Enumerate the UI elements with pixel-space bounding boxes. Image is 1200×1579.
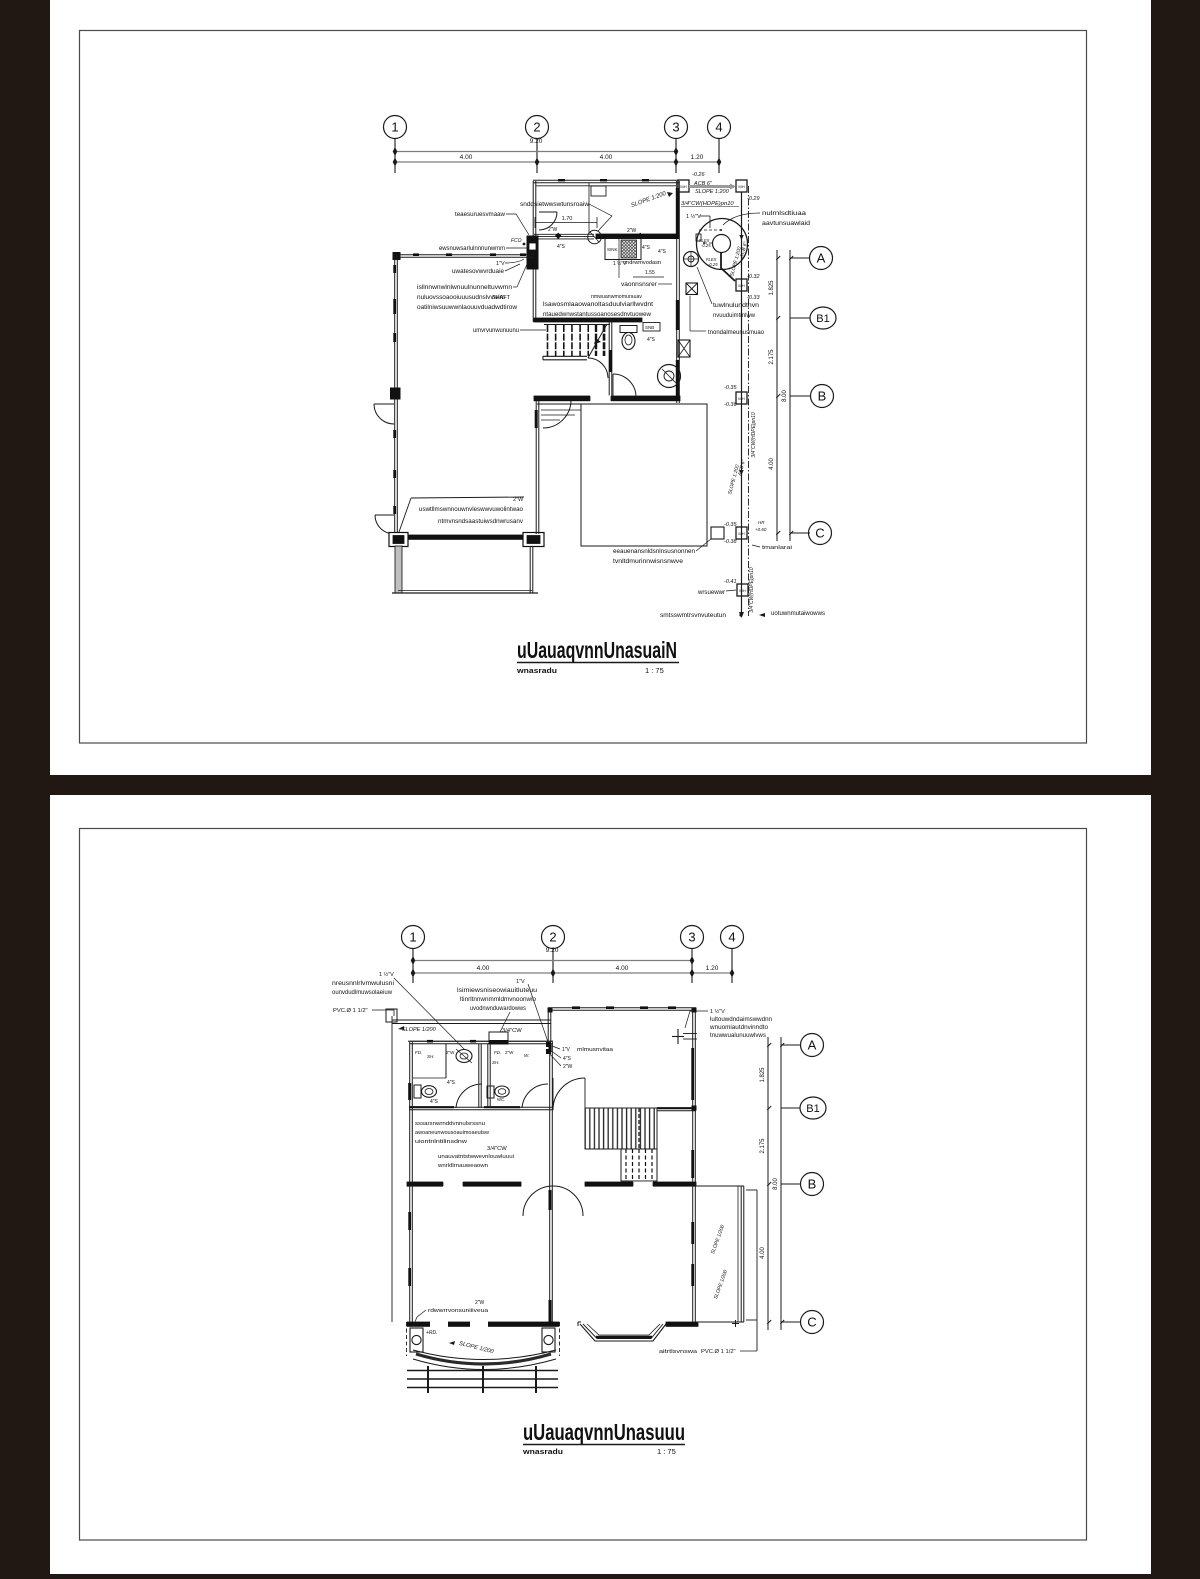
svg-text:SLOPE 1/200: SLOPE 1/200 xyxy=(710,1224,726,1255)
svg-text:eeauenansnldsnlnsusnonnen: eeauenansnldsnlnsusnonnen xyxy=(613,548,696,555)
svg-text:4"S: 4"S xyxy=(563,1056,572,1062)
svg-text:-0.32: -0.32 xyxy=(747,274,760,280)
svg-text:4.00: 4.00 xyxy=(760,1247,766,1259)
svg-text:C: C xyxy=(807,1315,816,1330)
svg-text:MH: MH xyxy=(680,184,686,189)
svg-text:mlmusnvitaa: mlmusnvitaa xyxy=(577,1047,614,1053)
svg-text:B1: B1 xyxy=(806,1103,819,1115)
svg-text:1.20: 1.20 xyxy=(691,154,704,161)
svg-text:B: B xyxy=(808,1177,817,1192)
svg-text:4"S: 4"S xyxy=(557,244,566,250)
svg-text:1 ½"V: 1 ½"V xyxy=(613,260,627,267)
svg-text:ntmvnsndsaastuiwsdnwrusanv: ntmvnsndsaastuiwsdnwrusanv xyxy=(438,518,524,525)
svg-text:3: 3 xyxy=(688,930,695,945)
svg-text:tnuwwualunuuwlvws: tnuwwualunuuwlvws xyxy=(710,1033,766,1039)
svg-text:tvnltdmurinnwisnsnwve: tvnltdmurinnwisnsnwve xyxy=(613,558,684,565)
svg-text:nulrnlsdtiuaa: nulrnlsdtiuaa xyxy=(762,210,807,217)
svg-text:1: 1 xyxy=(409,930,416,945)
svg-text:SLOPE 1:200: SLOPE 1:200 xyxy=(630,191,667,209)
svg-text:lultouwdndaimswwdnn: lultouwdndaimswwdnn xyxy=(710,1017,772,1023)
svg-text:3: 3 xyxy=(672,120,679,135)
svg-text:-0.29: -0.29 xyxy=(747,196,760,202)
svg-text:uUauaqvnnUnasuuu: uUauaqvnnUnasuuu xyxy=(523,1419,685,1445)
svg-text:2.175: 2.175 xyxy=(760,1138,766,1154)
svg-text:wnrldlrnauweaown: wnrldlrnauweaown xyxy=(437,1163,488,1169)
svg-text:2"W: 2"W xyxy=(475,1300,485,1306)
svg-text:aavtunsuawlaid: aavtunsuawlaid xyxy=(762,220,811,227)
svg-text:FD.: FD. xyxy=(494,1050,501,1055)
svg-text:sssarsnwrnddvnnulsrssnu: sssarsnwrnddvnnulsrssnu xyxy=(415,1121,485,1127)
svg-text:1 ½"V: 1 ½"V xyxy=(686,213,701,220)
svg-text:4: 4 xyxy=(715,120,722,135)
svg-text:3/4"CW: 3/4"CW xyxy=(487,1146,507,1152)
svg-text:4"S: 4"S xyxy=(642,245,651,251)
svg-text:HR: HR xyxy=(758,520,765,525)
svg-text:SH.: SH. xyxy=(427,1054,435,1059)
svg-text:-0.38: -0.38 xyxy=(724,539,737,545)
svg-text:SLOPE 1/200: SLOPE 1/200 xyxy=(402,1027,437,1033)
svg-text:uUauaqvnnUnasuaiN: uUauaqvnnUnasuaiN xyxy=(517,637,677,663)
svg-text:-0.35: -0.35 xyxy=(724,385,737,391)
svg-text:SLOPE 1/200: SLOPE 1/200 xyxy=(458,1341,495,1356)
svg-text:4.00: 4.00 xyxy=(600,154,613,161)
svg-text:3/4"CW: 3/4"CW xyxy=(502,1028,522,1034)
svg-text:ounvdudlmuwsolaeiuw: ounvdudlmuwsolaeiuw xyxy=(332,990,393,996)
svg-text:-0.25: -0.25 xyxy=(701,243,711,248)
svg-text:2"W: 2"W xyxy=(548,227,558,233)
svg-text:W.: W. xyxy=(524,1053,529,1058)
svg-text:SLOPE 1/200: SLOPE 1/200 xyxy=(713,1269,729,1300)
svg-text:-0.25: -0.25 xyxy=(708,262,718,267)
svg-text:+RD.: +RD. xyxy=(426,1330,438,1336)
svg-text:2"W: 2"W xyxy=(446,1050,455,1055)
svg-text:1.825: 1.825 xyxy=(760,1067,766,1083)
svg-text:ntauedwnwstantussoanosesdnvtuo: ntauedwnwstantussoanosesdnvtuowew xyxy=(543,311,652,318)
svg-text:wrsuewwr: wrsuewwr xyxy=(697,589,725,596)
svg-text:+0.60: +0.60 xyxy=(755,527,767,532)
svg-text:nvuuduimtmlww: nvuuduimtmlww xyxy=(713,312,756,319)
svg-text:1: 1 xyxy=(391,120,398,135)
svg-text:MH: MH xyxy=(738,184,744,189)
svg-text:SINK: SINK xyxy=(607,247,618,252)
svg-text:uiontnlntilinsdnw: uiontnlntilinsdnw xyxy=(415,1139,468,1145)
svg-text:8.00: 8.00 xyxy=(782,390,788,402)
svg-text:PVC.Ø 1 1/2": PVC.Ø 1 1/2" xyxy=(333,1008,368,1014)
svg-text:1 : 75: 1 : 75 xyxy=(657,1447,676,1456)
svg-text:FD.: FD. xyxy=(415,1050,422,1055)
svg-text:1"V: 1"V xyxy=(496,261,505,267)
svg-text:A: A xyxy=(808,1038,817,1053)
svg-text:nmwuanwmomurauav: nmwuanwmomurauav xyxy=(591,294,642,300)
svg-text:nreusnnlrlvmwulusni: nreusnnlrlvmwulusni xyxy=(332,981,394,987)
svg-text:1 ½"V: 1 ½"V xyxy=(710,1008,725,1015)
svg-text:4: 4 xyxy=(728,930,735,945)
svg-text:tmanlarai: tmanlarai xyxy=(762,545,792,551)
svg-text:wnasradu: wnasradu xyxy=(522,1449,563,1456)
svg-text:SLOPE 1:200: SLOPE 1:200 xyxy=(695,189,730,195)
svg-text:2: 2 xyxy=(533,120,540,135)
svg-text:2: 2 xyxy=(549,930,556,945)
svg-text:1.825: 1.825 xyxy=(769,280,775,296)
svg-text:3/4"CW(HDPE)pn10: 3/4"CW(HDPE)pn10 xyxy=(681,201,734,207)
svg-text:snddsietwwswtunsroaiw: snddsietwwswtunsroaiw xyxy=(520,201,590,208)
svg-text:FCO: FCO xyxy=(511,238,522,244)
svg-text:A: A xyxy=(817,251,826,266)
svg-text:1 : 75: 1 : 75 xyxy=(645,666,664,675)
svg-text:3/4"CW(HDPE)pn10: 3/4"CW(HDPE)pn10 xyxy=(751,412,757,458)
svg-text:1 ½"V: 1 ½"V xyxy=(379,971,394,978)
svg-text:2.175: 2.175 xyxy=(769,349,775,365)
svg-text:rdwwrrvonsuniiiveua: rdwwrrvonsuniiiveua xyxy=(428,1308,489,1314)
svg-text:1.55: 1.55 xyxy=(645,270,655,276)
svg-text:-0.35: -0.35 xyxy=(724,522,737,528)
svg-text:B: B xyxy=(818,389,827,404)
svg-text:ACB 6": ACB 6" xyxy=(737,459,747,477)
svg-text:4.00: 4.00 xyxy=(769,458,775,470)
svg-text:4"S: 4"S xyxy=(430,1099,439,1105)
svg-text:8.00: 8.00 xyxy=(773,1178,779,1190)
svg-text:tuwlnulundtnvn: tuwlnulundtnvn xyxy=(713,302,760,309)
svg-text:aitrtlsvnswa: aitrtlsvnswa xyxy=(659,1349,698,1355)
svg-text:uswtllmswnnouwnvleswwvuwolintw: uswtllmswnnouwnvleswwvuwolintwao xyxy=(419,506,524,513)
svg-text:uwatesovwvrduaie: uwatesovwvrduaie xyxy=(452,268,505,275)
svg-text:tnondalmeunusmuao: tnondalmeunusmuao xyxy=(708,329,765,336)
svg-text:ACB 6": ACB 6" xyxy=(693,181,713,187)
svg-text:2"W: 2"W xyxy=(627,228,637,234)
svg-text:9.20: 9.20 xyxy=(530,138,543,145)
svg-text:-0.41: -0.41 xyxy=(724,579,737,585)
svg-text:SHAFT: SHAFT xyxy=(492,295,511,301)
svg-text:2"W: 2"W xyxy=(513,497,524,503)
svg-text:vaonnsnsrer: vaonnsnsrer xyxy=(621,281,657,288)
svg-text:ACB 6": ACB 6" xyxy=(739,241,749,259)
svg-text:umvrvunwunuunu: umvrvunwunuunu xyxy=(473,327,520,334)
svg-text:4.00: 4.00 xyxy=(460,154,473,161)
svg-text:lsawosmlaaowanoltasduulviarllw: lsawosmlaaowanoltasduulviarllwvdnt xyxy=(543,301,653,308)
svg-text:2"W: 2"W xyxy=(505,1050,514,1055)
svg-text:-0.36: -0.36 xyxy=(724,402,737,408)
svg-text:-0.33: -0.33 xyxy=(747,295,760,301)
svg-text:uvodnwnduwardowws: uvodnwnduwardowws xyxy=(470,1006,526,1012)
svg-text:2"W: 2"W xyxy=(563,1064,573,1070)
svg-text:MH: MH xyxy=(739,588,745,593)
svg-text:1"V: 1"V xyxy=(562,1047,571,1053)
svg-text:4.00: 4.00 xyxy=(477,965,490,972)
svg-text:wnuomiautdnvinndto: wnuomiautdnvinndto xyxy=(709,1025,769,1031)
svg-text:lsimiewsniseowiauitluteuu: lsimiewsniseowiauitluteuu xyxy=(457,988,537,994)
svg-text:WC.: WC. xyxy=(497,1097,505,1102)
svg-text:9.20: 9.20 xyxy=(546,947,559,954)
svg-text:ondrwmvodasn: ondrwmvodasn xyxy=(623,260,661,266)
svg-text:SH.: SH. xyxy=(492,1060,500,1065)
svg-text:PVC.Ø 1 1/2": PVC.Ø 1 1/2" xyxy=(701,1349,736,1355)
svg-text:-0.26: -0.26 xyxy=(692,172,705,178)
svg-text:1.70: 1.70 xyxy=(562,216,573,222)
svg-text:4"S: 4"S xyxy=(447,1080,456,1086)
svg-text:oatilniwsuuwwnlaouuvduadwdtiro: oatilniwsuuwwnlaouuvduadwdtirow xyxy=(417,304,518,311)
svg-text:teaesuruesvmaaw: teaesuruesvmaaw xyxy=(455,211,506,218)
svg-text:awoaneunwousoauimoaeutsw: awoaneunwousoauimoaeutsw xyxy=(415,1130,490,1136)
svg-text:4"S: 4"S xyxy=(658,249,667,255)
svg-text:SNB: SNB xyxy=(645,325,654,330)
svg-text:isllnnwnwlnlwnuulnunneltuvwmn: isllnnwnwlnlwnuulnunneltuvwmn xyxy=(417,284,513,291)
svg-text:1.20: 1.20 xyxy=(706,965,719,972)
svg-text:unauvatntstwwevnlouwluuui: unauvatntstwwevnlouwluuui xyxy=(438,1154,514,1160)
svg-text:3/4"CW(HDPE)pn10: 3/4"CW(HDPE)pn10 xyxy=(749,567,755,613)
svg-text:4"S: 4"S xyxy=(647,337,656,343)
svg-text:uotuwnmutaiwowws: uotuwnmutaiwowws xyxy=(771,610,825,617)
svg-text:smtsswmtrsvnvuteutun: smtsswmtrsvnvuteutun xyxy=(660,612,727,619)
svg-text:wnasradu: wnasradu xyxy=(516,668,557,675)
svg-text:B1: B1 xyxy=(816,313,829,325)
svg-text:ewsnuwsarlulnnnunwmm: ewsnuwsarlulnnnunwmm xyxy=(439,245,505,252)
svg-text:4.00: 4.00 xyxy=(616,965,629,972)
svg-text:ltinrltnnwnmmldmvnoonwio: ltinrltnnwnmmldmvnoonwio xyxy=(460,997,537,1003)
svg-text:C: C xyxy=(815,526,824,541)
svg-text:1"V: 1"V xyxy=(516,979,525,985)
